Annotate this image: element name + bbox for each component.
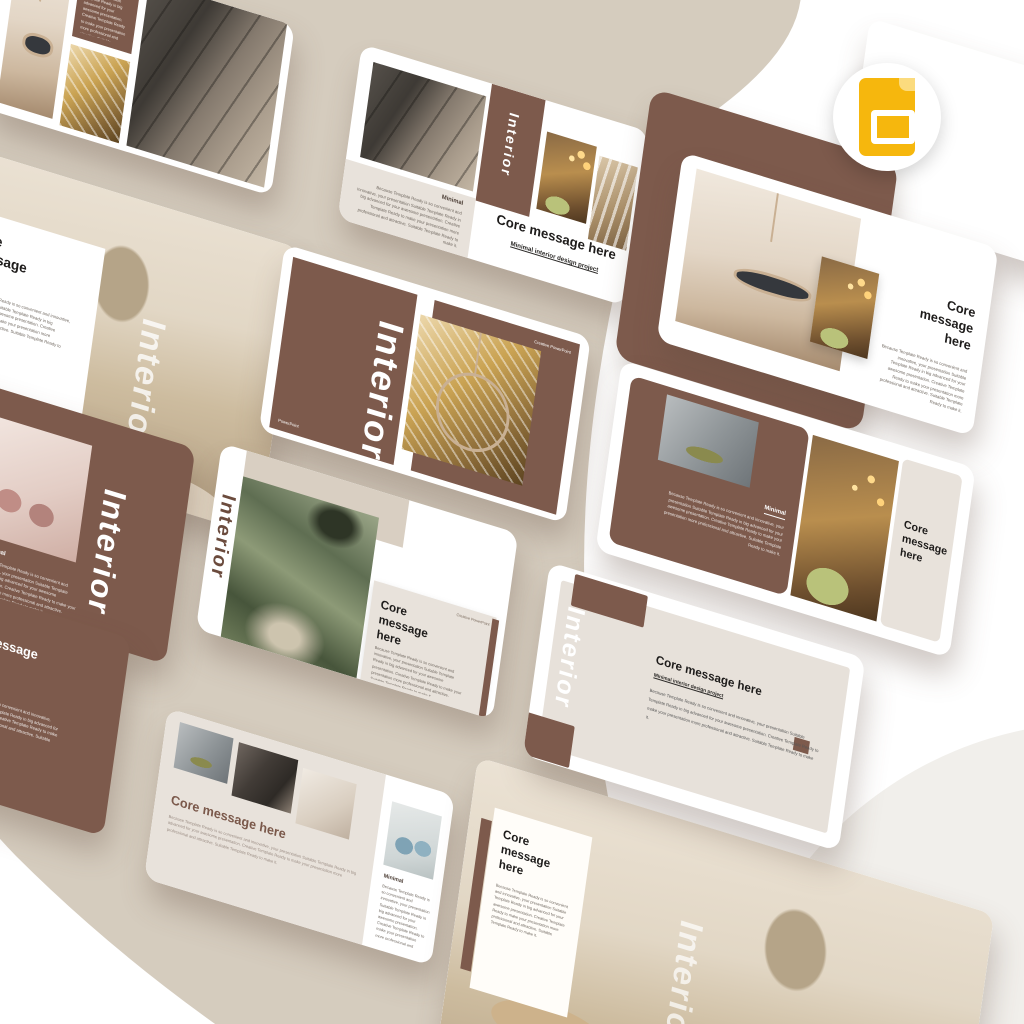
photo-blue-chairs [383, 801, 442, 880]
brown-left-panel: Interior PowerPoint [269, 257, 417, 465]
brown-accent-band: Interior [476, 84, 546, 217]
photo-restaurant [536, 132, 597, 224]
core-message-heading: Core message here [899, 519, 947, 573]
photo-beige-chair [295, 768, 356, 840]
minimal-label: Minimal [0, 545, 6, 557]
photo-restaurant-small [810, 256, 879, 359]
brown-panel: Minimal Because Template Ready is so con… [608, 375, 809, 596]
minimal-label: Minimal [764, 505, 787, 520]
core-message-heading: Core message here [0, 225, 59, 303]
body-text: Because Template Ready is so convenient … [657, 488, 784, 574]
slide-frame-icon [871, 110, 915, 144]
creative-credit: Creative PowerPoint [445, 609, 490, 628]
photo-pink-chairs [0, 414, 92, 562]
body-text: Because Template Ready is so convenient … [0, 685, 60, 777]
photo-yellow-room [59, 44, 130, 143]
photo-dark-hallway [231, 742, 298, 814]
body-text: Because Template Ready is so convenient … [0, 286, 72, 384]
google-slides-logo-badge [833, 63, 941, 171]
core-message-heading: Core message here [889, 281, 976, 354]
photo-green-sofa [658, 394, 759, 487]
core-message-heading: Core message here [0, 622, 42, 681]
slide-title: Interior [496, 111, 522, 204]
core-message-heading: Core message here [498, 827, 571, 892]
folded-corner-icon [899, 78, 915, 91]
body-text: Because Template Ready is so convenient … [375, 883, 432, 952]
photo-olive-chairs [174, 722, 234, 784]
body-text: Because Template Ready is so convenient … [488, 882, 571, 964]
body-text: Because Template Ready is so convenient … [875, 343, 967, 415]
text-block-brown: Because Template Ready is so convenient … [72, 0, 142, 54]
powerpoint-credit: PowerPoint [278, 418, 336, 442]
photo-restaurant-tall [790, 435, 899, 622]
body-text: Because Template Ready is so convenient … [80, 0, 135, 46]
template-preview-collage: Because Template Ready is so convenient … [0, 0, 1024, 1024]
